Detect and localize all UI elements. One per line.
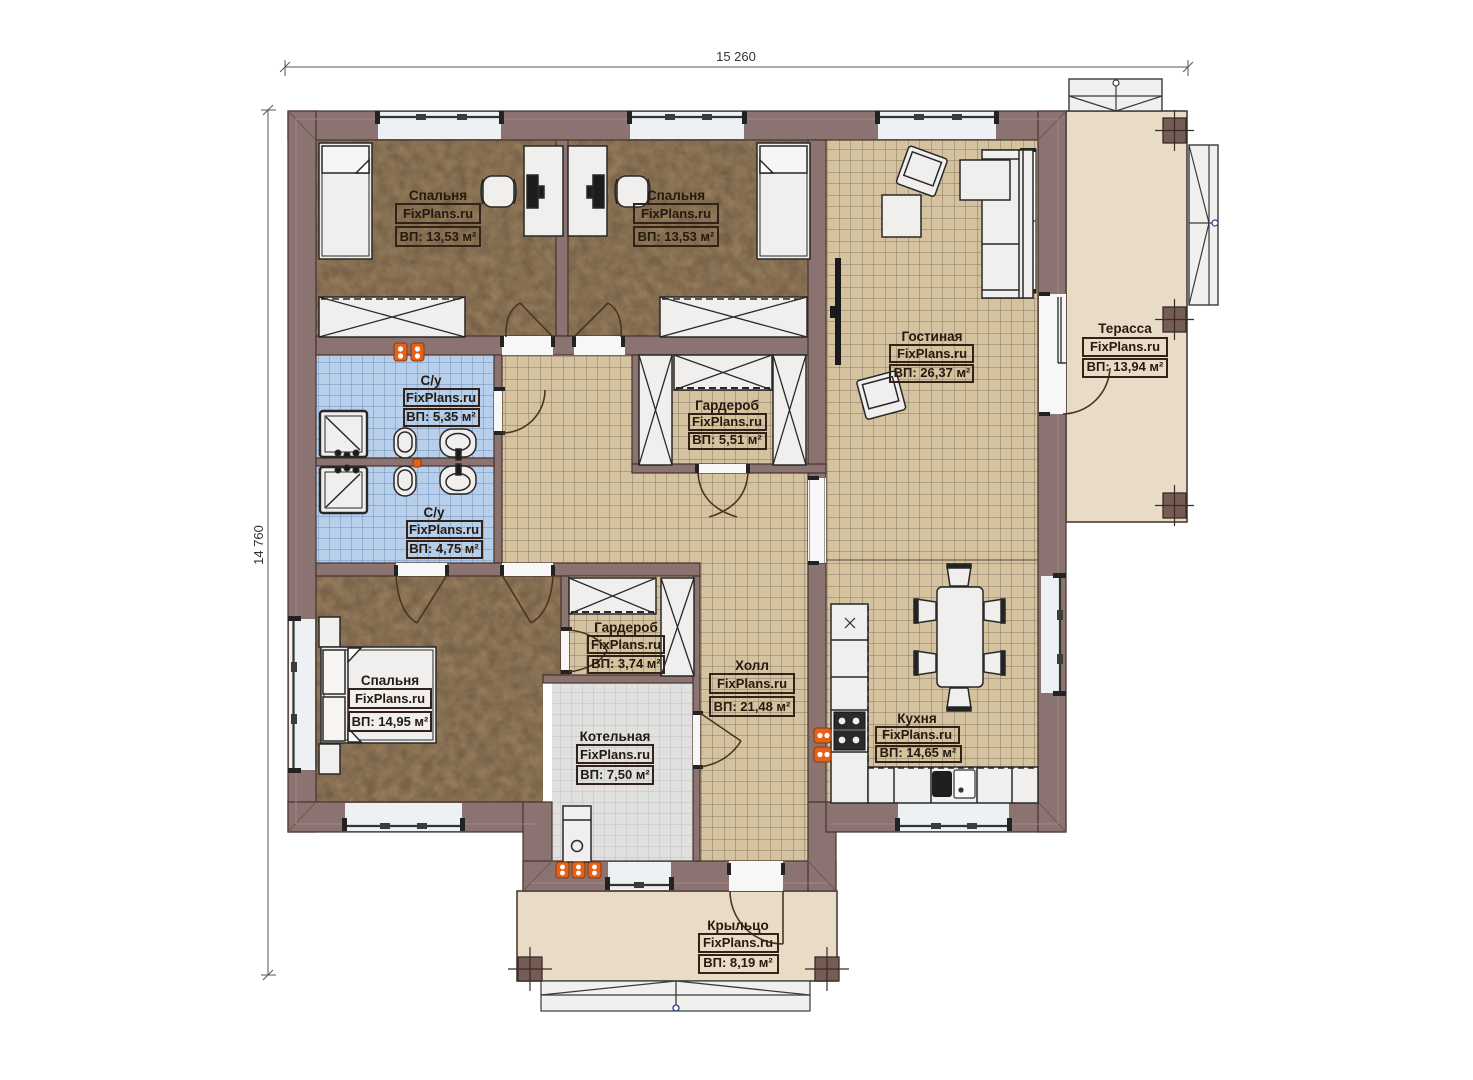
svg-text:Терасса: Терасса [1098, 321, 1152, 336]
svg-text:Котельная: Котельная [580, 729, 651, 744]
svg-text:ВП: 8,19 м²: ВП: 8,19 м² [703, 955, 773, 970]
svg-text:Спальня: Спальня [409, 188, 467, 203]
svg-text:FixPlans.ru: FixPlans.ru [1090, 339, 1160, 354]
svg-text:FixPlans.ru: FixPlans.ru [403, 206, 473, 221]
svg-text:Спальня: Спальня [647, 188, 705, 203]
svg-text:FixPlans.ru: FixPlans.ru [641, 206, 711, 221]
svg-text:FixPlans.ru: FixPlans.ru [591, 637, 661, 652]
svg-text:Гостиная: Гостиная [901, 329, 962, 344]
svg-text:14 760: 14 760 [251, 525, 266, 565]
svg-text:FixPlans.ru: FixPlans.ru [580, 747, 650, 762]
svg-text:Холл: Холл [735, 658, 769, 673]
svg-text:ВП: 3,74 м²: ВП: 3,74 м² [591, 656, 661, 671]
svg-text:Гардероб: Гардероб [594, 620, 658, 635]
svg-text:Крыльцо: Крыльцо [707, 918, 768, 933]
svg-text:ВП: 4,75 м²: ВП: 4,75 м² [409, 541, 479, 556]
svg-text:FixPlans.ru: FixPlans.ru [882, 727, 952, 742]
svg-text:FixPlans.ru: FixPlans.ru [717, 676, 787, 691]
svg-text:FixPlans.ru: FixPlans.ru [409, 522, 479, 537]
svg-text:ВП: 7,50 м²: ВП: 7,50 м² [580, 767, 650, 782]
svg-text:ВП: 26,37 м²: ВП: 26,37 м² [894, 365, 971, 380]
svg-text:FixPlans.ru: FixPlans.ru [703, 935, 773, 950]
svg-text:Гардероб: Гардероб [695, 398, 759, 413]
svg-text:С/у: С/у [423, 505, 445, 520]
svg-text:Спальня: Спальня [361, 673, 419, 688]
svg-text:ВП: 13,94 м²: ВП: 13,94 м² [1087, 359, 1164, 374]
svg-text:ВП: 5,51 м²: ВП: 5,51 м² [692, 432, 762, 447]
svg-text:ВП: 21,48 м²: ВП: 21,48 м² [714, 699, 791, 714]
svg-text:ВП: 13,53 м²: ВП: 13,53 м² [638, 229, 715, 244]
svg-text:ВП: 14,95 м²: ВП: 14,95 м² [352, 714, 429, 729]
svg-text:С/у: С/у [420, 373, 442, 388]
svg-text:FixPlans.ru: FixPlans.ru [692, 414, 762, 429]
svg-text:ВП: 14,65 м²: ВП: 14,65 м² [880, 745, 957, 760]
svg-text:FixPlans.ru: FixPlans.ru [897, 346, 967, 361]
svg-text:15 260: 15 260 [716, 49, 756, 64]
svg-text:FixPlans.ru: FixPlans.ru [406, 390, 476, 405]
svg-text:FixPlans.ru: FixPlans.ru [355, 691, 425, 706]
svg-text:ВП: 13,53 м²: ВП: 13,53 м² [400, 229, 477, 244]
svg-text:ВП: 5,35 м²: ВП: 5,35 м² [406, 409, 476, 424]
svg-text:Кухня: Кухня [897, 711, 936, 726]
